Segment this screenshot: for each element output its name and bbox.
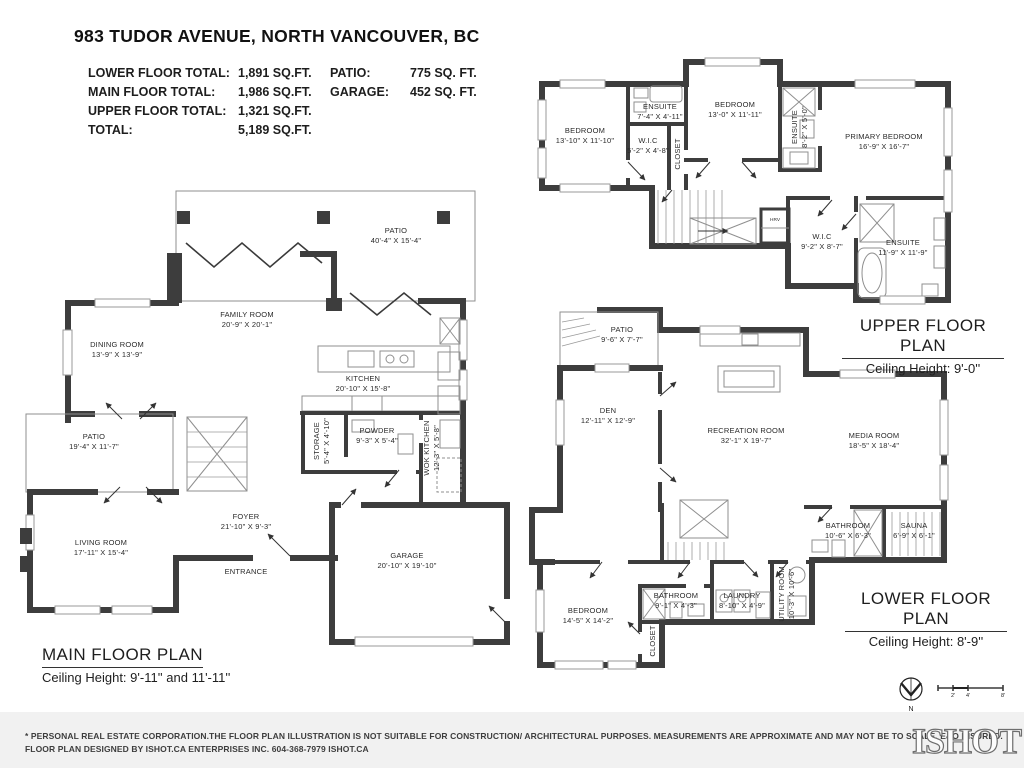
- room-label-storage: STORAGE 5'-4" X 4'-10": [312, 418, 332, 464]
- room-dims: 20'-10" X 19'-10": [377, 561, 436, 571]
- room-name: W.I.C: [627, 136, 669, 146]
- room-dims: 5'-4" X 4'-10": [322, 418, 332, 464]
- scale-mark-4ft: 4': [966, 693, 970, 699]
- plan-ceiling-text: Ceiling Height: 9'-0'': [842, 361, 1004, 376]
- room-dims: 8'-2" X 5'-0": [800, 106, 810, 148]
- room-dims: 32'-1" X 19'-7": [707, 436, 784, 446]
- stat-value: 1,891 SQ.FT.: [238, 66, 312, 85]
- room-label-ensuite-3: ENSUITE 11'-9" X 11'-9": [878, 238, 927, 258]
- room-name: POWDER: [356, 426, 398, 436]
- room-dims: 12'-3" X 5'-8": [432, 420, 442, 475]
- room-label-bedroom-2: BEDROOM 13'-0" X 11'-11": [708, 100, 762, 120]
- stat-value: 452 SQ. FT.: [410, 85, 477, 104]
- room-name: BEDROOM: [708, 100, 762, 110]
- room-dims: 9'-2" X 8'-7": [801, 242, 843, 252]
- plan-ceiling-text: Ceiling Height: 9'-11'' and 11'-11'': [42, 670, 230, 685]
- room-dims: 5'-2" X 4'-8": [627, 146, 669, 156]
- room-name: BATHROOM: [825, 521, 871, 531]
- room-name: CLOSET: [673, 138, 683, 169]
- scale-mark-2ft: 2': [951, 693, 955, 699]
- room-name: BEDROOM: [563, 606, 613, 616]
- upper-floor-plan-title: UPPER FLOOR PLAN Ceiling Height: 9'-0'': [842, 316, 1004, 376]
- room-label-bathroom-lower-1: BATHROOM 10'-6" X 6'-3": [825, 521, 871, 541]
- disclaimer-line-2: FLOOR PLAN DESIGNED BY ISHOT.CA ENTERPRI…: [25, 744, 369, 754]
- stat-row-upper: UPPER FLOOR TOTAL: 1,321 SQ.FT.: [88, 104, 312, 123]
- room-label-recreation-room: RECREATION ROOM 32'-1" X 19'-7": [707, 426, 784, 446]
- room-name: STORAGE: [312, 418, 322, 464]
- stat-value: 1,986 SQ.FT.: [238, 85, 312, 104]
- stat-label: LOWER FLOOR TOTAL:: [88, 66, 238, 85]
- room-label-media-room: MEDIA ROOM 18'-5" X 18'-4": [849, 431, 900, 451]
- room-label-family-room: FAMILY ROOM 20'-9" X 20'-1": [220, 310, 274, 330]
- room-label-patio-top: PATIO 40'-4" X 15'-4": [371, 226, 421, 246]
- room-dims: 9'-6" X 7'-7": [601, 335, 643, 345]
- room-label-garage: GARAGE 20'-10" X 19'-10": [377, 551, 436, 571]
- room-label-wic-2: W.I.C 9'-2" X 8'-7": [801, 232, 843, 252]
- room-name: ENSUITE: [878, 238, 927, 248]
- room-label-powder: POWDER 9'-3" X 5'-4": [356, 426, 398, 446]
- room-name: HRV: [770, 218, 780, 224]
- room-label-closet-upper: CLOSET: [673, 138, 683, 169]
- room-label-closet-lower: CLOSET: [648, 625, 658, 656]
- plan-title-text: MAIN FLOOR PLAN: [42, 645, 203, 668]
- room-name: PATIO: [371, 226, 421, 236]
- stat-label: GARAGE:: [330, 85, 410, 104]
- room-name: PATIO: [69, 432, 119, 442]
- room-dims: 8'-10" X 4'-9": [719, 601, 765, 611]
- room-label-living-room: LIVING ROOM 17'-11" X 15'-4": [74, 538, 128, 558]
- room-label-foyer: FOYER 21'-10" X 9'-3": [221, 512, 271, 532]
- area-summary-table-2: PATIO: 775 SQ. FT. GARAGE: 452 SQ. FT.: [330, 66, 477, 104]
- stat-row-garage: GARAGE: 452 SQ. FT.: [330, 85, 477, 104]
- stat-row-total: TOTAL: 5,189 SQ.FT.: [88, 123, 312, 142]
- room-name: WOK KITCHEN: [422, 420, 432, 475]
- room-label-sauna: SAUNA 6'-9" X 6'-1": [893, 521, 935, 541]
- room-dims: 20'-9" X 20'-1": [220, 320, 274, 330]
- room-name: FOYER: [221, 512, 271, 522]
- room-label-kitchen: KITCHEN 20'-10" X 15'-8": [336, 374, 391, 394]
- room-label-laundry: LAUNDRY 8'-10" X 4'-9": [719, 591, 765, 611]
- room-label-dining-room: DINING ROOM 13'-9" X 13'-9": [90, 340, 144, 360]
- room-dims: 10'-3" X 10'-6": [787, 566, 797, 622]
- room-label-primary-bedroom: PRIMARY BEDROOM 16'-9" X 16'-7": [845, 132, 923, 152]
- scale-mark-8ft: 8': [1001, 693, 1005, 699]
- room-name: BEDROOM: [556, 126, 615, 136]
- room-label-den: DEN 12'-11" X 12'-9": [581, 406, 635, 426]
- room-label-wic-1: W.I.C 5'-2" X 4'-8": [627, 136, 669, 156]
- room-name: PATIO: [601, 325, 643, 335]
- room-name: SAUNA: [893, 521, 935, 531]
- room-label-patio-left: PATIO 19'-4" X 11'-7": [69, 432, 119, 452]
- stat-row-lower: LOWER FLOOR TOTAL: 1,891 SQ.FT.: [88, 66, 312, 85]
- room-dims: 40'-4" X 15'-4": [371, 236, 421, 246]
- room-name: CLOSET: [648, 625, 658, 656]
- stat-label: PATIO:: [330, 66, 410, 85]
- room-dims: 6'-9" X 6'-1": [893, 531, 935, 541]
- room-label-bedroom-1: BEDROOM 13'-10" X 11'-10": [556, 126, 615, 146]
- disclaimer-line-1: * PERSONAL REAL ESTATE CORPORATION.THE F…: [25, 731, 1003, 741]
- room-name: FAMILY ROOM: [220, 310, 274, 320]
- floor-plan-page: N 2' 4' 8' 983 TUDOR AVENUE, NORTH VANCO…: [0, 0, 1024, 768]
- room-label-wok-kitchen: WOK KITCHEN 12'-3" X 5'-8": [422, 420, 442, 475]
- area-summary-table: LOWER FLOOR TOTAL: 1,891 SQ.FT. MAIN FLO…: [88, 66, 312, 142]
- room-name: W.I.C: [801, 232, 843, 242]
- stat-label: UPPER FLOOR TOTAL:: [88, 104, 238, 123]
- room-dims: 20'-10" X 15'-8": [336, 384, 391, 394]
- room-name: DEN: [581, 406, 635, 416]
- room-label-bedroom-lower: BEDROOM 14'-5" X 14'-2": [563, 606, 613, 626]
- scale-bar: 2' 4' 8': [938, 685, 1005, 699]
- room-label-patio-lower: PATIO 9'-6" X 7'-7": [601, 325, 643, 345]
- compass-icon: N: [900, 678, 922, 713]
- room-dims: 16'-9" X 16'-7": [845, 142, 923, 152]
- main-floor-walls: [20, 191, 507, 646]
- room-dims: 13'-10" X 11'-10": [556, 136, 615, 146]
- stat-label: TOTAL:: [88, 123, 238, 142]
- room-label-bathroom-lower-2: BATHROOM 9'-1" X 4'-3": [654, 591, 698, 611]
- ishot-logo: ISHOT: [912, 720, 1021, 762]
- room-name: RECREATION ROOM: [707, 426, 784, 436]
- room-label-entrance: ENTRANCE: [225, 567, 268, 577]
- room-name: UTILITY ROOM: [777, 566, 787, 622]
- room-name: ENSUITE: [790, 106, 800, 148]
- room-name: ENSUITE: [637, 102, 682, 112]
- room-name: KITCHEN: [336, 374, 391, 384]
- room-dims: 9'-1" X 4'-3": [654, 601, 698, 611]
- room-dims: 7'-4" X 4'-11": [637, 112, 682, 122]
- plan-title-text: LOWER FLOOR PLAN: [845, 589, 1007, 632]
- room-dims: 13'-0" X 11'-11": [708, 110, 762, 120]
- stat-value: 1,321 SQ.FT.: [238, 104, 312, 123]
- stat-label: MAIN FLOOR TOTAL:: [88, 85, 238, 104]
- room-dims: 10'-6" X 6'-3": [825, 531, 871, 541]
- upper-floor-walls: [538, 58, 952, 304]
- room-name: ENTRANCE: [225, 567, 268, 577]
- room-name: LIVING ROOM: [74, 538, 128, 548]
- stat-row-patio: PATIO: 775 SQ. FT.: [330, 66, 477, 85]
- stat-row-main: MAIN FLOOR TOTAL: 1,986 SQ.FT.: [88, 85, 312, 104]
- room-name: BATHROOM: [654, 591, 698, 601]
- room-name: LAUNDRY: [719, 591, 765, 601]
- room-dims: 13'-9" X 13'-9": [90, 350, 144, 360]
- room-dims: 11'-9" X 11'-9": [878, 248, 927, 258]
- room-dims: 12'-11" X 12'-9": [581, 416, 635, 426]
- stat-value: 5,189 SQ.FT.: [238, 123, 312, 142]
- room-dims: 19'-4" X 11'-7": [69, 442, 119, 452]
- room-label-hrv: HRV: [770, 218, 780, 224]
- room-dims: 18'-5" X 18'-4": [849, 441, 900, 451]
- lower-floor-plan-title: LOWER FLOOR PLAN Ceiling Height: 8'-9'': [845, 589, 1007, 649]
- room-dims: 21'-10" X 9'-3": [221, 522, 271, 532]
- room-label-utility-room: UTILITY ROOM 10'-3" X 10'-6": [777, 566, 797, 622]
- room-dims: 14'-5" X 14'-2": [563, 616, 613, 626]
- room-name: DINING ROOM: [90, 340, 144, 350]
- room-name: PRIMARY BEDROOM: [845, 132, 923, 142]
- room-label-ensuite-2: ENSUITE 8'-2" X 5'-0": [790, 106, 810, 148]
- plan-title-text: UPPER FLOOR PLAN: [842, 316, 1004, 359]
- room-dims: 9'-3" X 5'-4": [356, 436, 398, 446]
- room-dims: 17'-11" X 15'-4": [74, 548, 128, 558]
- room-label-ensuite-1: ENSUITE 7'-4" X 4'-11": [637, 102, 682, 122]
- room-name: MEDIA ROOM: [849, 431, 900, 441]
- plan-ceiling-text: Ceiling Height: 8'-9'': [845, 634, 1007, 649]
- main-floor-plan-title: MAIN FLOOR PLAN Ceiling Height: 9'-11'' …: [42, 645, 230, 685]
- room-name: GARAGE: [377, 551, 436, 561]
- stat-value: 775 SQ. FT.: [410, 66, 477, 85]
- property-address-title: 983 TUDOR AVENUE, NORTH VANCOUVER, BC: [74, 26, 480, 47]
